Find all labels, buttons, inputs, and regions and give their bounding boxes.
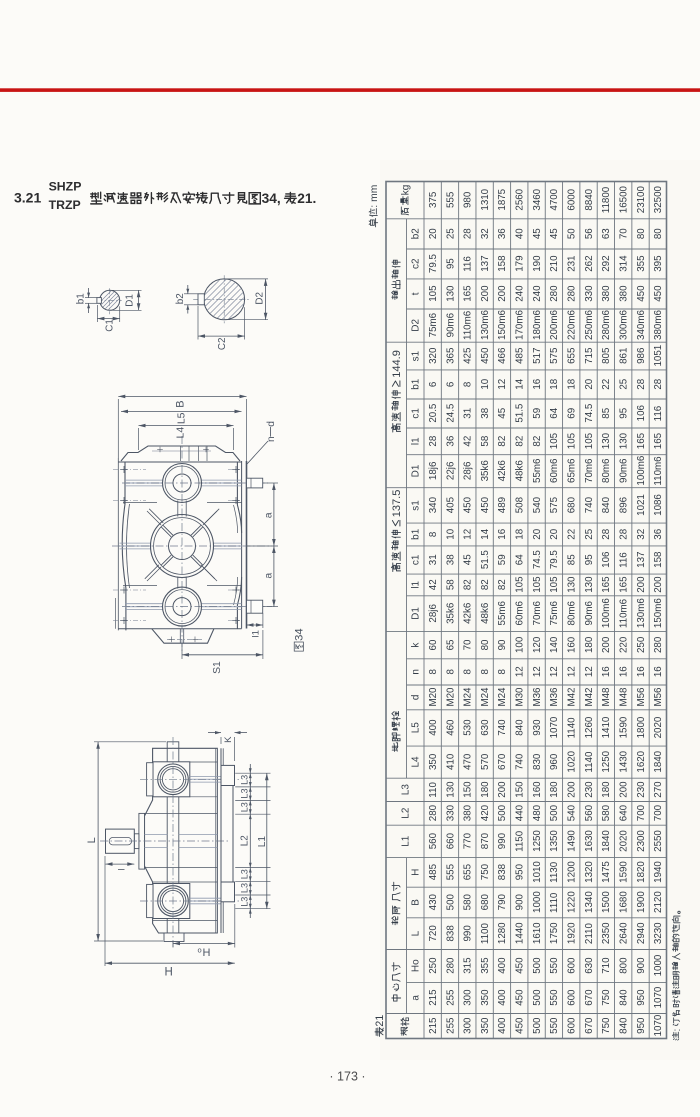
svg-text:M20: M20 (445, 687, 456, 707)
svg-text:24.5: 24.5 (445, 403, 456, 423)
svg-text:600: 600 (567, 1017, 578, 1034)
svg-text:740: 740 (584, 496, 595, 513)
svg-text:450: 450 (515, 957, 526, 974)
svg-text:70m6: 70m6 (584, 459, 595, 483)
svg-text:L3: L3 (400, 784, 411, 796)
svg-text:570: 570 (480, 753, 491, 770)
svg-text:34,: 34, (262, 191, 281, 206)
svg-text:640: 640 (618, 804, 629, 821)
svg-text:530: 530 (463, 719, 474, 736)
svg-text:106: 106 (636, 405, 647, 421)
svg-text:58: 58 (445, 579, 456, 590)
svg-text:500: 500 (549, 804, 560, 821)
svg-text:400: 400 (497, 989, 508, 1006)
svg-text:55m6: 55m6 (497, 601, 508, 625)
svg-text:365: 365 (445, 347, 456, 364)
svg-text:· 173 ·: · 173 · (329, 1070, 365, 1084)
svg-text:990: 990 (497, 832, 508, 849)
svg-text:10: 10 (480, 378, 491, 389)
svg-text:180: 180 (549, 781, 560, 798)
svg-text:770: 770 (463, 832, 474, 849)
svg-text:28: 28 (636, 379, 647, 390)
svg-text:670: 670 (497, 753, 508, 770)
svg-text:2120: 2120 (653, 891, 664, 913)
svg-text:75m6: 75m6 (428, 313, 439, 337)
svg-text:79.5: 79.5 (428, 254, 439, 274)
svg-text:90m6: 90m6 (618, 459, 629, 483)
svg-text:12: 12 (584, 666, 595, 677)
svg-text:c1: c1 (411, 408, 422, 419)
svg-text:D1: D1 (125, 294, 136, 307)
svg-text:80m6: 80m6 (601, 459, 612, 483)
svg-text:32500: 32500 (653, 185, 664, 213)
svg-text:750: 750 (480, 863, 491, 880)
svg-text:130m6: 130m6 (480, 310, 491, 340)
svg-text:1800: 1800 (636, 716, 647, 738)
svg-text:110: 110 (428, 782, 439, 798)
svg-text:42: 42 (428, 579, 439, 590)
svg-text:90m6: 90m6 (445, 313, 456, 337)
svg-text:400: 400 (497, 957, 508, 974)
svg-text:830: 830 (532, 753, 543, 770)
svg-text:95: 95 (618, 407, 629, 418)
svg-text:16: 16 (653, 666, 664, 677)
svg-text:838: 838 (445, 925, 456, 941)
svg-text:466: 466 (497, 348, 508, 364)
svg-text:16: 16 (532, 379, 543, 390)
svg-text:1150: 1150 (515, 830, 526, 852)
svg-text:158: 158 (653, 552, 664, 568)
svg-text:60: 60 (428, 639, 439, 650)
svg-text:L3: L3 (239, 788, 249, 798)
svg-text:320: 320 (428, 347, 439, 364)
svg-text:b2: b2 (175, 293, 186, 304)
svg-text:65: 65 (445, 639, 456, 650)
svg-text:31: 31 (428, 554, 439, 565)
svg-text:470: 470 (463, 753, 474, 770)
svg-text:292: 292 (601, 255, 612, 271)
svg-text:300: 300 (463, 1017, 474, 1034)
svg-text:80: 80 (636, 228, 647, 239)
svg-text:82: 82 (532, 436, 543, 447)
svg-text:715: 715 (584, 347, 595, 364)
svg-text:28: 28 (428, 436, 439, 447)
svg-text:45: 45 (463, 554, 474, 565)
svg-text:200: 200 (618, 781, 629, 798)
svg-text:59: 59 (532, 408, 543, 419)
svg-text:n: n (411, 669, 422, 675)
svg-text:116: 116 (618, 552, 629, 568)
svg-text:TRZP: TRZP (49, 198, 81, 212)
svg-text:12: 12 (532, 666, 543, 677)
svg-text:517: 517 (532, 348, 543, 364)
svg-text:450: 450 (515, 1017, 526, 1034)
svg-text:200: 200 (480, 285, 491, 302)
svg-text:790: 790 (497, 893, 508, 910)
svg-text:575: 575 (549, 347, 560, 364)
svg-text:M48: M48 (601, 688, 612, 707)
svg-text:130: 130 (445, 285, 456, 302)
svg-text:130: 130 (584, 576, 595, 593)
svg-text:8: 8 (463, 382, 474, 387)
svg-text:130: 130 (445, 781, 456, 798)
svg-text:38: 38 (445, 554, 456, 565)
svg-text:1110: 1110 (549, 892, 560, 913)
svg-text:2020: 2020 (653, 716, 664, 738)
svg-text:S1: S1 (212, 661, 223, 674)
svg-text:140: 140 (549, 636, 560, 653)
svg-text:95: 95 (445, 258, 456, 269)
svg-text:165: 165 (601, 576, 612, 593)
svg-text:710: 710 (601, 957, 612, 974)
svg-text:1250: 1250 (532, 830, 543, 852)
svg-text:1620: 1620 (636, 750, 647, 772)
svg-text:425: 425 (463, 347, 474, 364)
svg-text:8: 8 (445, 669, 456, 674)
svg-text:170m6: 170m6 (515, 310, 526, 340)
svg-text:180: 180 (584, 636, 595, 653)
svg-text:51.5: 51.5 (480, 550, 491, 570)
svg-text:o: o (198, 946, 202, 955)
svg-text:116: 116 (463, 256, 474, 272)
svg-text:500: 500 (497, 804, 508, 821)
svg-text:280: 280 (445, 957, 456, 974)
svg-text:H: H (165, 967, 173, 979)
svg-text:l1: l1 (411, 580, 422, 588)
svg-text:45: 45 (497, 407, 508, 418)
svg-text:1086: 1086 (653, 494, 664, 516)
svg-text:450: 450 (480, 496, 491, 513)
svg-text:L3: L3 (239, 897, 249, 907)
svg-text:6: 6 (428, 382, 439, 387)
svg-text:1500: 1500 (601, 891, 612, 913)
svg-text:64: 64 (549, 407, 560, 418)
svg-text:32: 32 (636, 529, 647, 540)
svg-text:105: 105 (567, 432, 578, 449)
svg-text:990: 990 (463, 925, 474, 942)
svg-text:M24: M24 (463, 687, 474, 707)
svg-text:105: 105 (549, 576, 560, 593)
svg-text:900: 900 (636, 957, 647, 974)
svg-text:SHZP: SHZP (49, 179, 82, 193)
svg-text:840: 840 (601, 496, 612, 513)
svg-text:240: 240 (532, 285, 543, 302)
svg-text:1840: 1840 (653, 750, 664, 772)
svg-text:600: 600 (567, 989, 578, 1006)
svg-text:410: 410 (445, 753, 456, 770)
svg-text:n: n (266, 436, 277, 442)
svg-text:861: 861 (618, 348, 629, 364)
svg-text:380m6: 380m6 (653, 310, 664, 340)
svg-text:42k6: 42k6 (463, 603, 474, 624)
svg-text:838: 838 (497, 864, 508, 880)
svg-text:20: 20 (549, 528, 560, 539)
svg-text:c1: c1 (411, 554, 422, 565)
svg-text:1010: 1010 (532, 861, 543, 883)
svg-text:1940: 1940 (653, 861, 664, 883)
svg-text:a: a (263, 573, 274, 579)
svg-text:350: 350 (428, 753, 439, 770)
svg-text:74.5: 74.5 (584, 403, 595, 423)
svg-text:575: 575 (549, 496, 560, 513)
svg-text:450: 450 (653, 285, 664, 302)
svg-text:110m6: 110m6 (618, 599, 629, 628)
svg-text:100m6: 100m6 (601, 598, 612, 628)
svg-text:130: 130 (618, 432, 629, 449)
svg-text:L3: L3 (239, 869, 249, 879)
svg-text:220m6: 220m6 (567, 310, 578, 340)
svg-text:180: 180 (480, 781, 491, 798)
svg-text:375: 375 (428, 191, 439, 208)
svg-text:220: 220 (618, 636, 629, 653)
svg-text:M24: M24 (497, 687, 508, 707)
svg-text:1475: 1475 (601, 861, 612, 883)
svg-text:560: 560 (428, 832, 439, 849)
svg-text:14: 14 (480, 528, 491, 539)
svg-text:64: 64 (515, 554, 526, 565)
svg-text:a: a (263, 512, 274, 518)
svg-text:200: 200 (497, 781, 508, 798)
svg-text:1680: 1680 (618, 891, 629, 913)
svg-text:555: 555 (445, 863, 456, 880)
svg-text:48k6: 48k6 (480, 603, 491, 624)
svg-text:L2: L2 (400, 807, 411, 819)
svg-text:950: 950 (636, 989, 647, 1006)
svg-text:1220: 1220 (567, 891, 578, 913)
svg-text:230: 230 (636, 781, 647, 798)
svg-text:36: 36 (445, 436, 456, 447)
svg-text:380: 380 (463, 804, 474, 821)
svg-text:150: 150 (463, 781, 474, 798)
svg-text:s1: s1 (411, 350, 422, 361)
svg-text:18: 18 (549, 379, 560, 390)
svg-text:105: 105 (532, 576, 543, 593)
svg-text:80: 80 (480, 639, 491, 650)
svg-text:255: 255 (445, 1017, 456, 1034)
svg-text:1590: 1590 (618, 861, 629, 883)
svg-text:L2: L2 (240, 835, 251, 846)
svg-text:18: 18 (515, 529, 526, 540)
svg-text:42k6: 42k6 (497, 460, 508, 481)
svg-text:130m6: 130m6 (636, 598, 647, 628)
svg-text:150m6: 150m6 (497, 310, 508, 340)
svg-text:1750: 1750 (549, 922, 560, 944)
svg-text:190: 190 (532, 255, 543, 272)
svg-text:231: 231 (567, 255, 578, 271)
svg-text:D1: D1 (411, 607, 422, 620)
svg-text:480: 480 (532, 804, 543, 821)
svg-text:8840: 8840 (584, 188, 595, 210)
svg-text:b1: b1 (75, 293, 86, 304)
svg-text:395: 395 (653, 255, 664, 272)
svg-text:896: 896 (618, 497, 629, 513)
svg-text:80m6: 80m6 (567, 601, 578, 625)
svg-text:405: 405 (445, 496, 456, 513)
svg-text:90m6: 90m6 (584, 601, 595, 625)
svg-text:60m6: 60m6 (549, 459, 560, 483)
svg-text:2560: 2560 (515, 188, 526, 210)
svg-text:28: 28 (463, 228, 474, 239)
svg-text:2110: 2110 (584, 923, 595, 945)
svg-text:350: 350 (480, 989, 491, 1006)
svg-text:300m6: 300m6 (618, 310, 629, 340)
svg-text:4700: 4700 (549, 188, 560, 210)
svg-text:L1: L1 (257, 836, 268, 848)
svg-text:1260: 1260 (584, 716, 595, 738)
svg-text:70: 70 (463, 639, 474, 650)
svg-text:58: 58 (480, 436, 491, 447)
svg-text:380: 380 (601, 285, 612, 302)
svg-text:550: 550 (549, 957, 560, 974)
svg-text:750: 750 (601, 1017, 612, 1034)
svg-text:314: 314 (618, 255, 629, 272)
svg-text:960: 960 (549, 753, 560, 770)
svg-text:8: 8 (463, 669, 474, 674)
svg-text:200: 200 (601, 636, 612, 653)
svg-text:31: 31 (463, 408, 474, 419)
svg-text:M24: M24 (480, 687, 491, 707)
svg-text:489: 489 (497, 497, 508, 513)
svg-text:42: 42 (463, 436, 474, 447)
svg-text:270: 270 (653, 781, 664, 798)
svg-text:16: 16 (636, 666, 647, 677)
svg-text:20: 20 (428, 228, 439, 239)
svg-text:34: 34 (294, 628, 306, 640)
svg-text:500: 500 (445, 893, 456, 910)
svg-text:20.5: 20.5 (428, 403, 439, 423)
svg-text:70: 70 (618, 228, 629, 239)
svg-text:80: 80 (653, 228, 664, 239)
svg-text:3.21: 3.21 (14, 189, 41, 205)
svg-text:69: 69 (567, 408, 578, 419)
svg-text:28: 28 (618, 529, 629, 540)
svg-text:1140: 1140 (584, 751, 595, 773)
svg-text:70m6: 70m6 (532, 601, 543, 625)
svg-text:63: 63 (601, 228, 612, 239)
svg-text:1350: 1350 (549, 830, 560, 852)
svg-text:b1: b1 (411, 378, 422, 390)
svg-text:1100: 1100 (480, 923, 491, 945)
svg-text:986: 986 (636, 348, 647, 364)
svg-text:137: 137 (480, 255, 491, 271)
svg-text:180m6: 180m6 (532, 310, 543, 340)
svg-text:485: 485 (515, 347, 526, 364)
svg-text:106: 106 (601, 552, 612, 568)
svg-text:160: 160 (532, 781, 543, 798)
svg-text:110m6: 110m6 (653, 456, 664, 485)
svg-text:2350: 2350 (601, 922, 612, 944)
svg-text:670: 670 (584, 1017, 595, 1034)
svg-text:6: 6 (445, 382, 456, 387)
svg-text:200: 200 (567, 781, 578, 798)
svg-text:800: 800 (618, 957, 629, 974)
svg-text:kg: kg (400, 185, 411, 196)
svg-text:950: 950 (636, 1017, 647, 1034)
svg-text:340m6: 340m6 (636, 310, 647, 340)
svg-text:120: 120 (532, 636, 543, 653)
svg-text:200m6: 200m6 (549, 310, 560, 340)
svg-text:14: 14 (515, 378, 526, 389)
svg-text:555: 555 (445, 191, 456, 208)
svg-text:420: 420 (480, 804, 491, 821)
svg-text:280: 280 (549, 285, 560, 302)
svg-text:35k6: 35k6 (480, 460, 491, 481)
svg-text:655: 655 (463, 863, 474, 880)
svg-text:25: 25 (618, 378, 629, 389)
svg-text:L3: L3 (239, 775, 249, 785)
svg-text:355: 355 (636, 255, 647, 272)
svg-text:655: 655 (567, 347, 578, 364)
svg-text:550: 550 (549, 1017, 560, 1034)
svg-text:240: 240 (515, 285, 526, 302)
svg-text:200: 200 (653, 576, 664, 593)
svg-text:165: 165 (653, 432, 664, 449)
svg-text:680: 680 (567, 496, 578, 513)
svg-text:L: L (411, 930, 422, 936)
svg-text:L3: L3 (239, 883, 249, 893)
svg-text:1440: 1440 (515, 922, 526, 944)
svg-text:150: 150 (515, 781, 526, 798)
svg-text:85: 85 (567, 554, 578, 565)
svg-text:l1: l1 (411, 437, 422, 445)
svg-text:B: B (411, 899, 422, 906)
svg-text:82: 82 (480, 579, 491, 590)
svg-text:L1: L1 (400, 835, 411, 847)
svg-text:38: 38 (480, 408, 491, 419)
svg-text:250: 250 (636, 636, 647, 653)
svg-text:23100: 23100 (636, 185, 647, 213)
svg-text:74.5: 74.5 (532, 550, 543, 570)
svg-text:450: 450 (515, 989, 526, 1006)
svg-text:M56: M56 (636, 688, 647, 707)
svg-text:H: H (411, 869, 422, 876)
svg-text:8: 8 (497, 669, 508, 674)
svg-text:L4: L4 (411, 756, 422, 768)
svg-text:508: 508 (515, 497, 526, 513)
svg-text:b1: b1 (411, 528, 422, 540)
svg-text:840: 840 (618, 989, 629, 1006)
svg-text:1630: 1630 (584, 830, 595, 852)
svg-text:20: 20 (584, 378, 595, 389)
svg-text:55m6: 55m6 (532, 459, 543, 483)
svg-text:660: 660 (445, 832, 456, 849)
svg-text:580: 580 (463, 893, 474, 910)
svg-text:540: 540 (567, 804, 578, 821)
svg-text:485: 485 (428, 863, 439, 880)
svg-text:210: 210 (549, 255, 560, 272)
svg-text:580: 580 (601, 804, 612, 821)
svg-text:1320: 1320 (584, 861, 595, 883)
svg-text:16: 16 (601, 666, 612, 677)
svg-text:750: 750 (601, 989, 612, 1006)
svg-text:90: 90 (497, 639, 508, 650)
svg-text:M36: M36 (532, 688, 543, 707)
svg-text:12: 12 (497, 379, 508, 390)
svg-text:165: 165 (463, 285, 474, 302)
svg-text:16: 16 (497, 529, 508, 540)
svg-text:20: 20 (532, 528, 543, 539)
svg-text:1021: 1021 (636, 494, 647, 516)
svg-text:35k6: 35k6 (445, 603, 456, 624)
svg-text:M48: M48 (618, 688, 629, 707)
svg-text:28j6: 28j6 (463, 462, 474, 480)
svg-text:82: 82 (515, 436, 526, 447)
svg-text:100m6: 100m6 (636, 456, 647, 486)
svg-text:740: 740 (497, 719, 508, 736)
svg-text:: mm: : mm (369, 185, 380, 208)
svg-text:400: 400 (428, 719, 439, 736)
svg-text:840: 840 (618, 1017, 629, 1034)
